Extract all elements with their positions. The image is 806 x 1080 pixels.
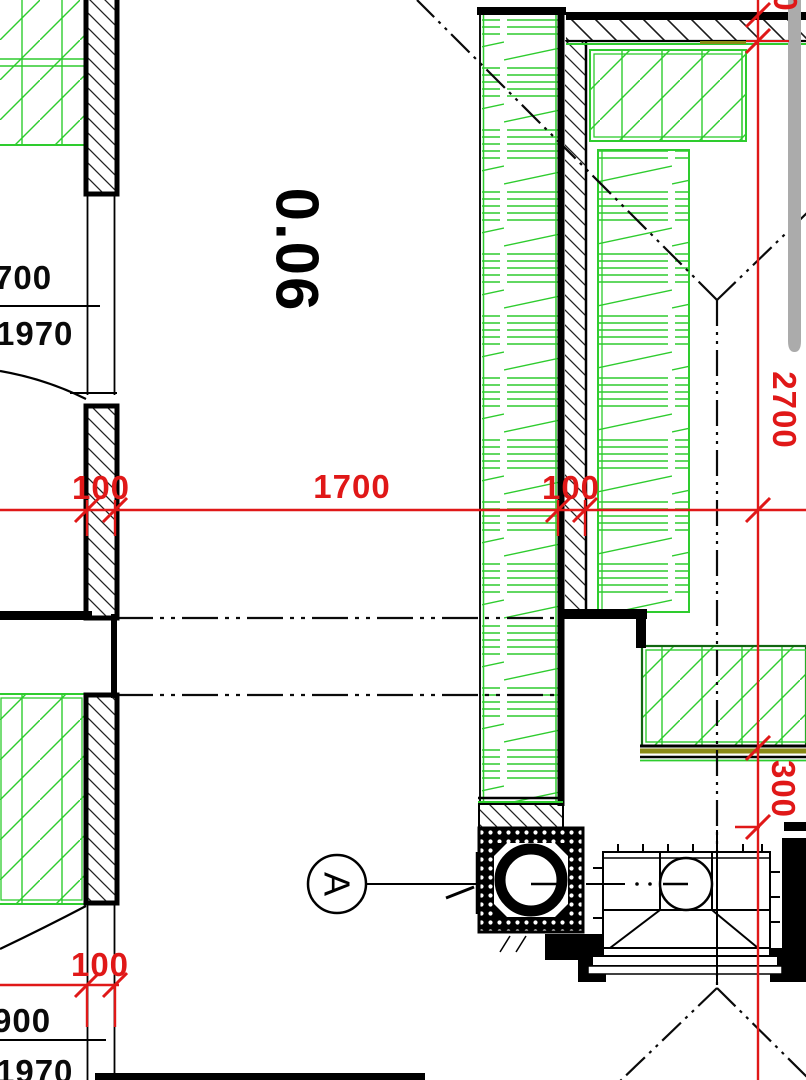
door-top-width-label: 700	[0, 259, 52, 296]
room-number-label: 0.06	[264, 188, 331, 313]
dim-100-bottom: 100	[71, 946, 129, 983]
chimney	[479, 828, 607, 982]
insulation-bottom-left	[0, 694, 86, 904]
section-marker-letter: A	[317, 872, 358, 896]
fireplace	[586, 822, 806, 985]
dim-top-partial: 0	[767, 0, 804, 12]
dim-100-left: 100	[72, 469, 130, 506]
door-bottom-height-label: 1970	[0, 1053, 73, 1080]
red-dimension-labels: 100 1700 100 2700 300 100 0	[71, 0, 804, 983]
door-top	[0, 196, 117, 399]
floor-plan-canvas: 700 1970 900 1970	[0, 0, 806, 1080]
dim-2700: 2700	[766, 371, 803, 448]
dim-300: 300	[765, 760, 802, 818]
insulation-top-right-box	[590, 50, 746, 141]
door-top-dimensions: 700 1970	[0, 259, 100, 352]
gray-shaft-band	[788, 0, 801, 352]
bottom-wall-strip	[95, 1073, 425, 1080]
insulation-lower-right-box	[640, 646, 806, 761]
insulation-right-column	[598, 150, 689, 612]
dim-1700: 1700	[313, 468, 390, 505]
insulation-top-left	[0, 0, 86, 145]
dim-100-mid: 100	[542, 469, 600, 506]
door-bottom-width-label: 900	[0, 1002, 51, 1039]
door-top-height-label: 1970	[0, 315, 73, 352]
section-marker: A	[308, 852, 478, 914]
top-wall-band	[566, 12, 806, 44]
door-bottom-dimensions: 900 1970	[0, 1002, 106, 1080]
